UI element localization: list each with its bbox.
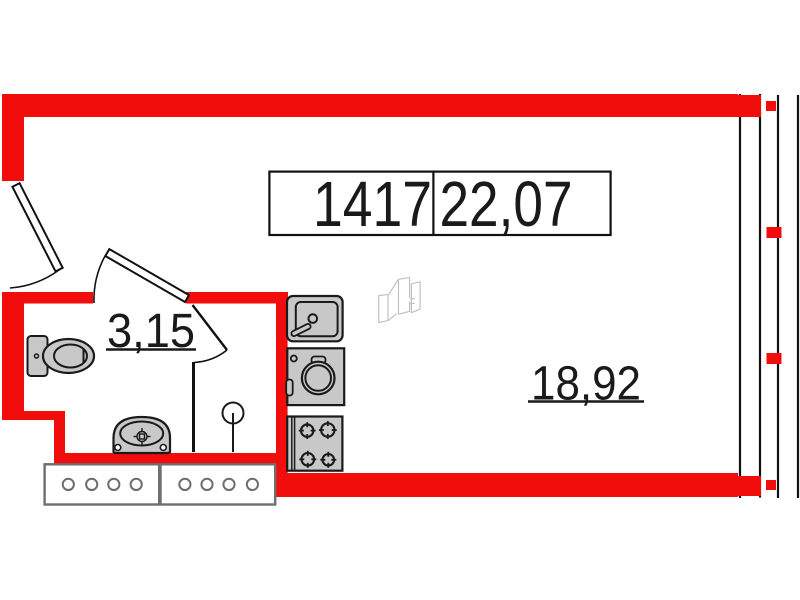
svg-text:22,07: 22,07 bbox=[440, 168, 573, 240]
svg-text:1417: 1417 bbox=[313, 168, 432, 240]
